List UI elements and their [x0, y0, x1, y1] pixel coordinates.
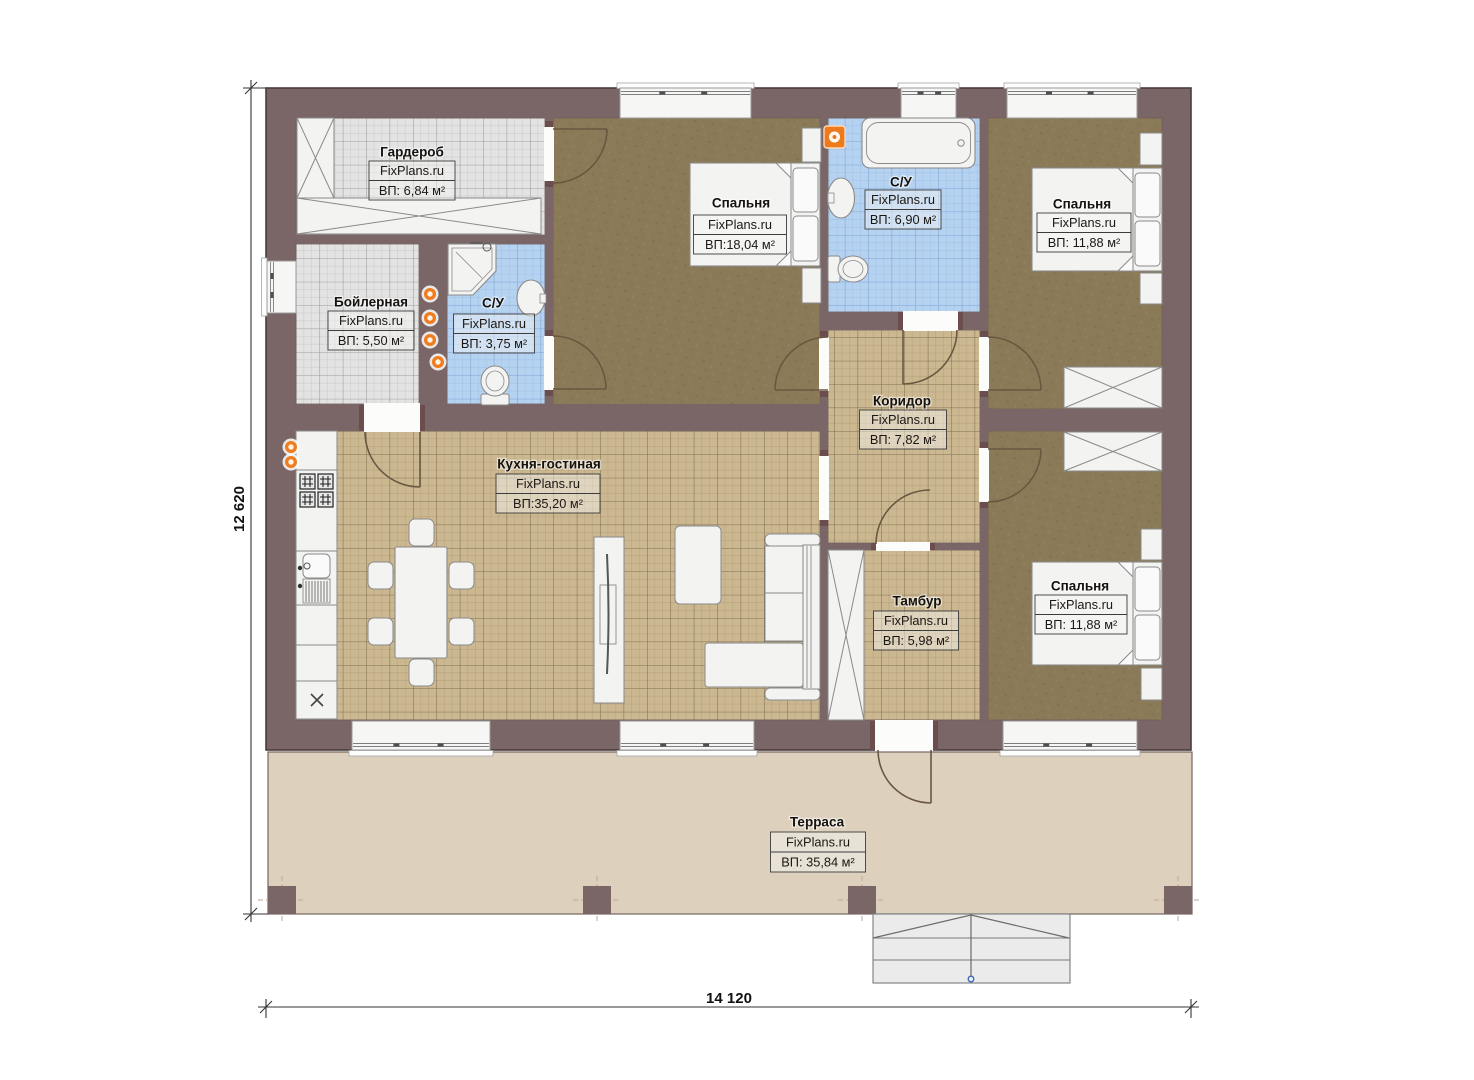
svg-text:ВП: 35,84 м²: ВП: 35,84 м² [781, 855, 855, 870]
svg-text:ВП: 11,88 м²: ВП: 11,88 м² [1048, 235, 1121, 250]
svg-text:ВП: 11,88 м²: ВП: 11,88 м² [1045, 617, 1118, 632]
svg-text:FixPlans.ru: FixPlans.ru [516, 476, 580, 491]
svg-text:Бойлерная: Бойлерная [334, 295, 408, 310]
svg-text:Спальня: Спальня [1051, 579, 1109, 594]
svg-text:FixPlans.ru: FixPlans.ru [462, 316, 526, 331]
svg-text:ВП: 6,84 м²: ВП: 6,84 м² [379, 183, 446, 198]
svg-text:FixPlans.ru: FixPlans.ru [1049, 597, 1113, 612]
svg-text:ВП: 5,98 м²: ВП: 5,98 м² [883, 633, 950, 648]
svg-text:FixPlans.ru: FixPlans.ru [1052, 215, 1116, 230]
svg-text:FixPlans.ru: FixPlans.ru [708, 217, 772, 232]
svg-text:Тамбур: Тамбур [893, 594, 942, 609]
svg-text:С/У: С/У [890, 175, 913, 190]
svg-text:FixPlans.ru: FixPlans.ru [871, 412, 935, 427]
svg-text:Спальня: Спальня [1053, 197, 1111, 212]
svg-text:Кухня-гостиная: Кухня-гостиная [497, 457, 600, 472]
svg-text:ВП:35,20 м²: ВП:35,20 м² [513, 496, 584, 511]
svg-text:ВП: 7,82 м²: ВП: 7,82 м² [870, 432, 937, 447]
svg-text:12 620: 12 620 [231, 486, 248, 532]
svg-text:FixPlans.ru: FixPlans.ru [380, 163, 444, 178]
svg-text:ВП: 3,75 м²: ВП: 3,75 м² [461, 336, 528, 351]
svg-text:ВП: 6,90 м²: ВП: 6,90 м² [870, 212, 937, 227]
svg-text:ВП:18,04 м²: ВП:18,04 м² [705, 237, 776, 252]
svg-text:FixPlans.ru: FixPlans.ru [871, 192, 935, 207]
svg-text:14 120: 14 120 [706, 990, 752, 1007]
svg-text:Коридор: Коридор [873, 394, 931, 409]
svg-text:FixPlans.ru: FixPlans.ru [884, 613, 948, 628]
svg-text:Спальня: Спальня [712, 196, 770, 211]
svg-text:FixPlans.ru: FixPlans.ru [786, 835, 850, 850]
svg-text:С/У: С/У [482, 296, 505, 311]
svg-text:Гардероб: Гардероб [380, 145, 444, 160]
svg-text:FixPlans.ru: FixPlans.ru [339, 313, 403, 328]
svg-text:ВП: 5,50 м²: ВП: 5,50 м² [338, 333, 405, 348]
svg-text:Терраса: Терраса [790, 815, 845, 830]
